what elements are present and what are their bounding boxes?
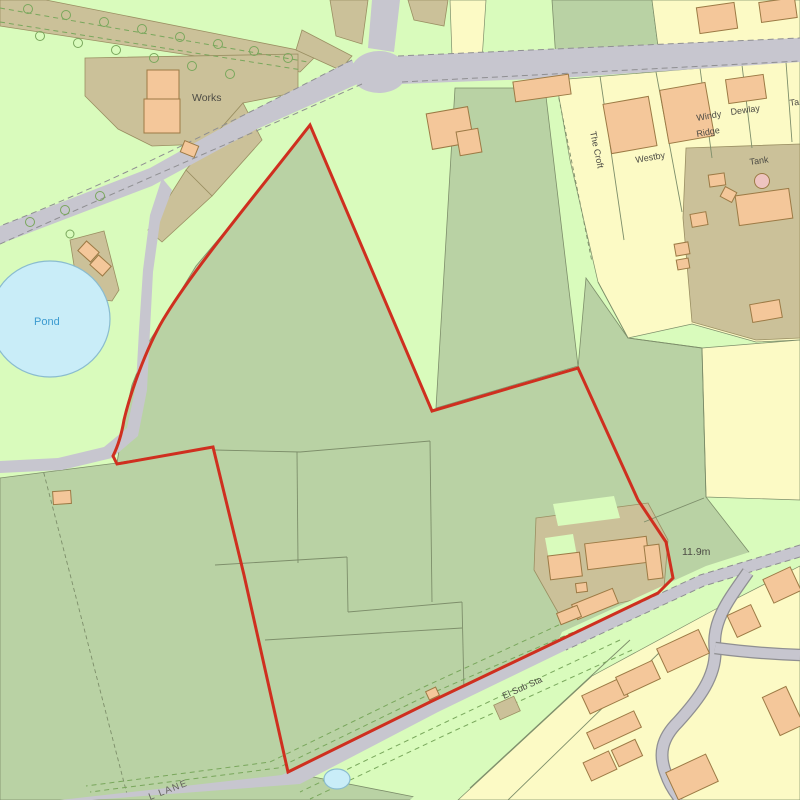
label-works: Works [192, 92, 222, 104]
label-pond: Pond [34, 316, 60, 328]
house-top-edge-1 [696, 2, 737, 33]
outbuilding-3 [676, 258, 690, 270]
parcel-top-small [450, 0, 486, 60]
parcel-right-strip [702, 340, 800, 500]
small-pond [324, 769, 350, 789]
label-spot-height: 11.9m [682, 546, 711, 558]
tank-yard [683, 144, 800, 340]
farm-shed-3 [575, 582, 587, 592]
label-tank-partial: Ta [789, 97, 800, 108]
farm-house [548, 552, 583, 580]
field-barn [53, 490, 72, 504]
house-dewlay [726, 74, 767, 103]
tank-building-2 [708, 173, 726, 187]
map-viewport: Works Pond The Croft Westby Windy Ridge … [0, 0, 800, 800]
house-westby [603, 96, 657, 153]
works-building-2 [144, 99, 180, 133]
map-canvas[interactable]: Works Pond The Croft Westby Windy Ridge … [0, 0, 800, 800]
tank-structure [755, 174, 770, 189]
road-junction [351, 51, 407, 93]
outbuilding-1 [690, 212, 708, 228]
house-the-croft-wing [456, 128, 482, 155]
outbuilding-2 [674, 242, 690, 256]
